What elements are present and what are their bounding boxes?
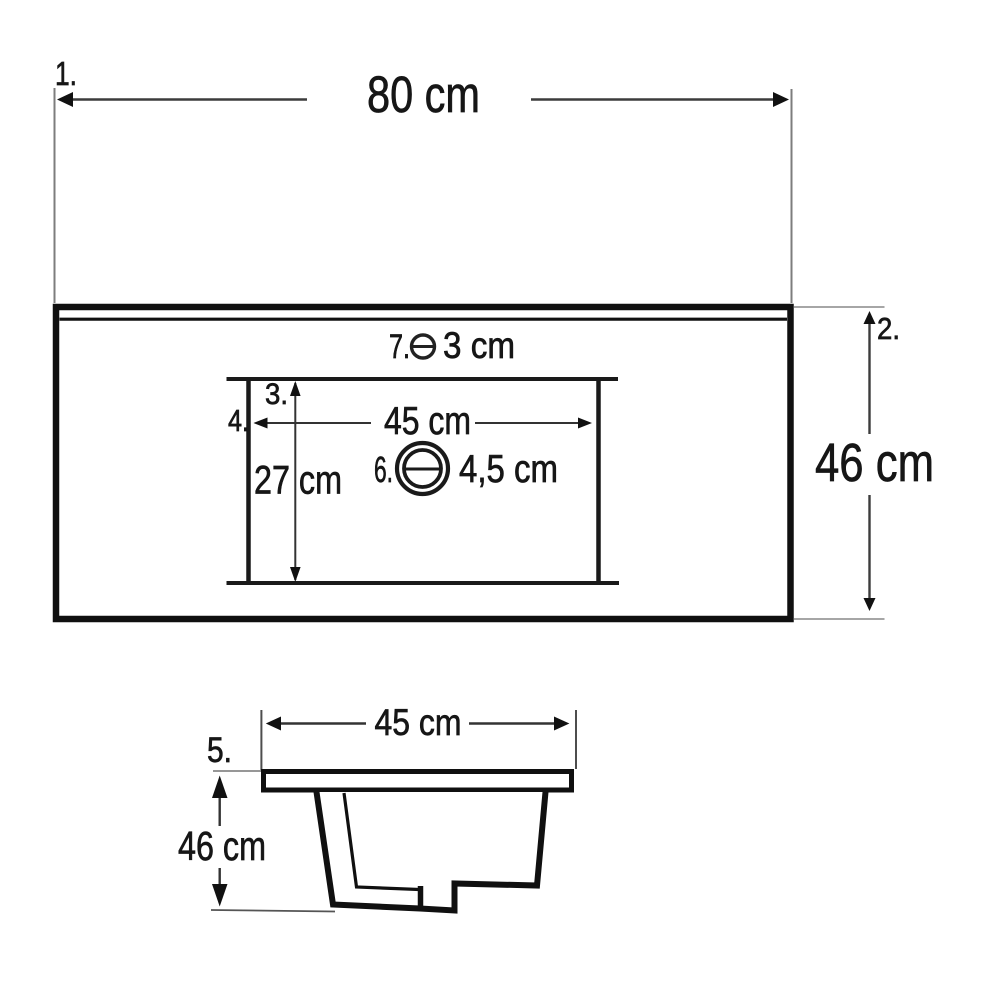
svg-text:2.: 2. — [877, 311, 900, 346]
svg-text:1.: 1. — [55, 55, 77, 92]
svg-text:5.: 5. — [207, 731, 232, 770]
svg-text:3.: 3. — [265, 378, 288, 411]
svg-text:80 cm: 80 cm — [367, 66, 480, 123]
svg-text:4.: 4. — [228, 403, 249, 438]
svg-text:3 cm: 3 cm — [443, 324, 515, 366]
svg-text:46 cm: 46 cm — [815, 433, 934, 493]
svg-text:6.: 6. — [374, 449, 393, 490]
svg-text:46 cm: 46 cm — [178, 823, 266, 869]
svg-text:27 cm: 27 cm — [254, 459, 342, 503]
svg-text:45 cm: 45 cm — [375, 701, 462, 743]
svg-text:45 cm: 45 cm — [384, 400, 471, 443]
svg-text:7.: 7. — [389, 328, 410, 366]
svg-text:4,5 cm: 4,5 cm — [459, 448, 558, 491]
